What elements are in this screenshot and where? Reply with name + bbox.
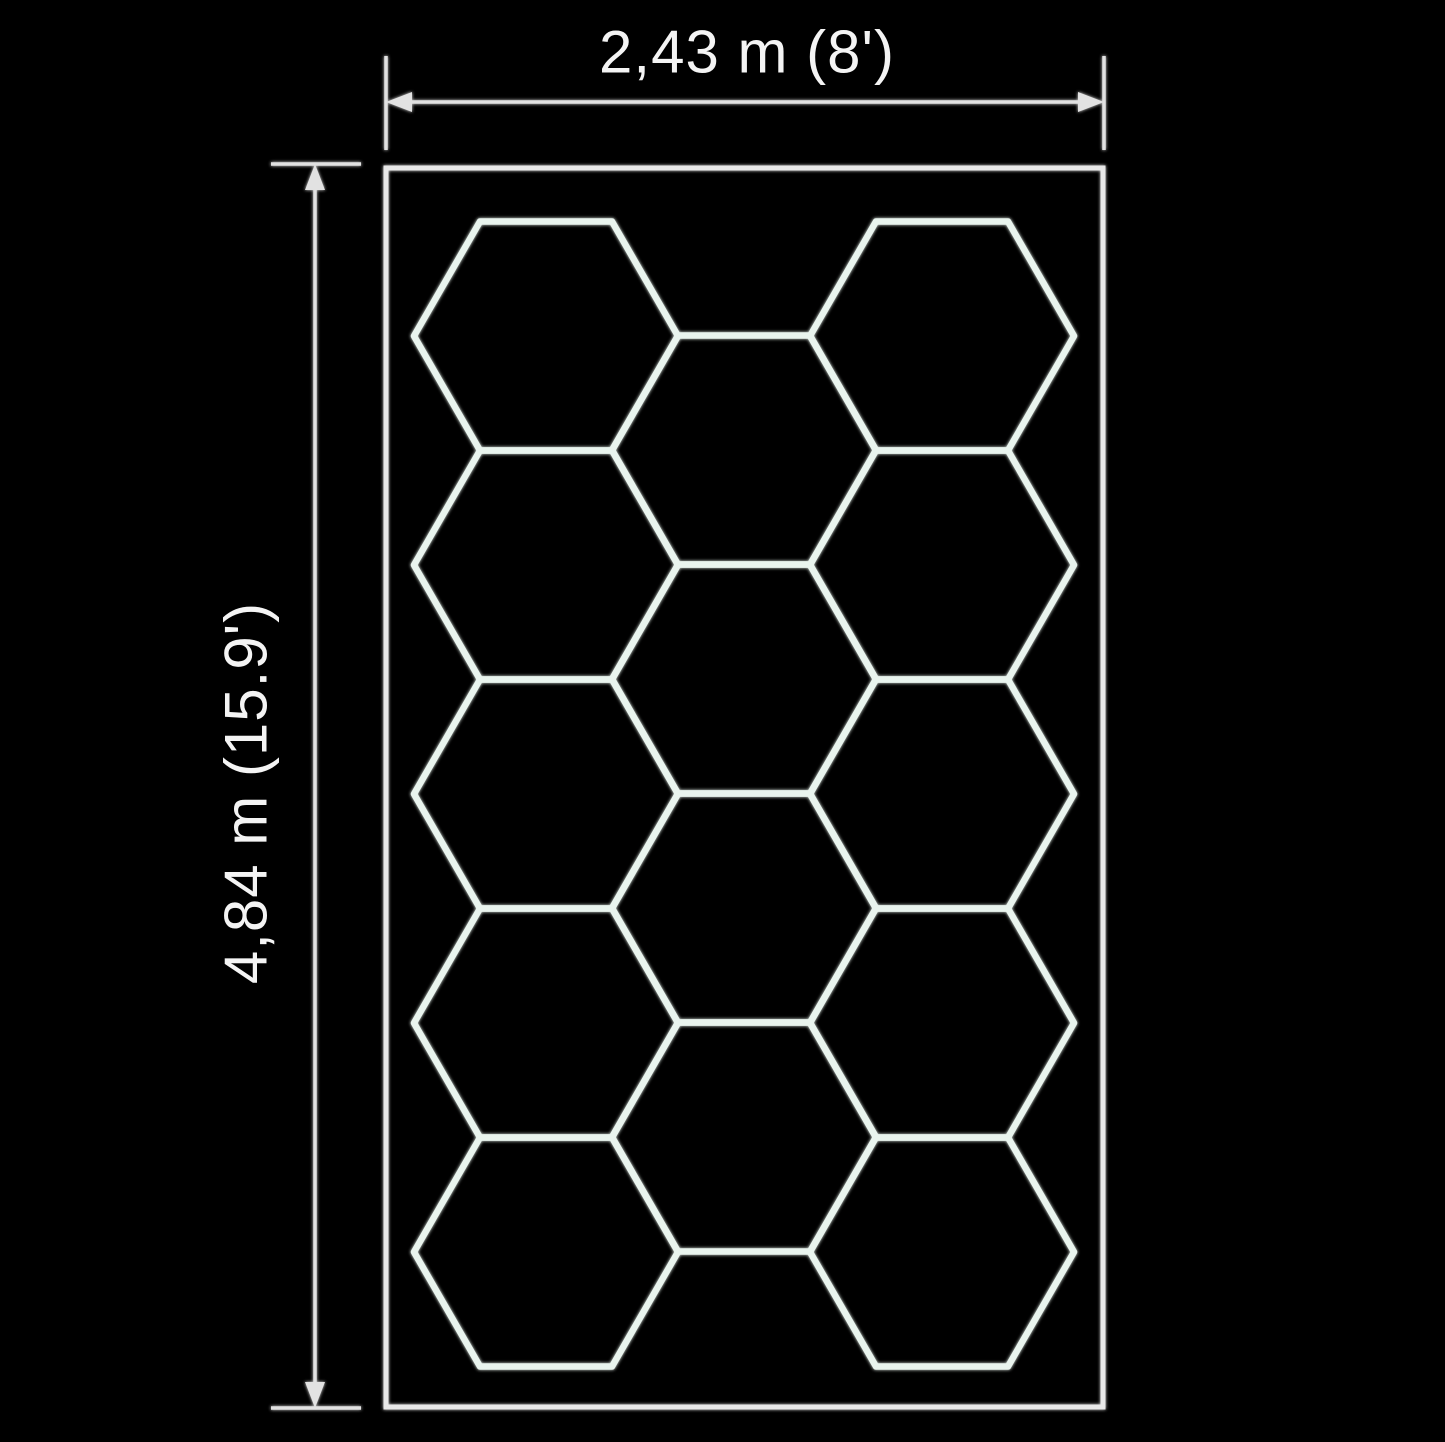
arrowhead-up-icon (305, 164, 325, 190)
hexagon-tile (414, 680, 678, 909)
panel-outline (386, 168, 1103, 1407)
hexagon-tile (810, 1138, 1074, 1367)
hexagon-tile (612, 1023, 876, 1252)
hexagon-grid (414, 222, 1074, 1367)
arrowhead-left-icon (386, 92, 412, 112)
height-dimension (271, 164, 361, 1408)
hexagon-tile (612, 336, 876, 565)
hex-grid-dimension-diagram: 2,43 m (8') 4,84 m (15.9') (0, 0, 1445, 1442)
hexagon-tile (612, 794, 876, 1023)
hexagon-tile (414, 451, 678, 680)
hexagon-tile (810, 680, 1074, 909)
width-dimension-label: 2,43 m (8') (599, 19, 895, 86)
arrowhead-right-icon (1078, 92, 1104, 112)
hexagon-tile (414, 1138, 678, 1367)
hexagon-tile (414, 909, 678, 1138)
arrowhead-down-icon (305, 1382, 325, 1408)
diagram-canvas: 2,43 m (8') 4,84 m (15.9') (0, 0, 1445, 1442)
height-dimension-label: 4,84 m (15.9') (213, 602, 280, 984)
hexagon-tile (810, 451, 1074, 680)
hexagon-tile (414, 222, 678, 451)
hexagon-tile (810, 909, 1074, 1138)
hexagon-tile (612, 565, 876, 794)
hexagon-tile (810, 222, 1074, 451)
